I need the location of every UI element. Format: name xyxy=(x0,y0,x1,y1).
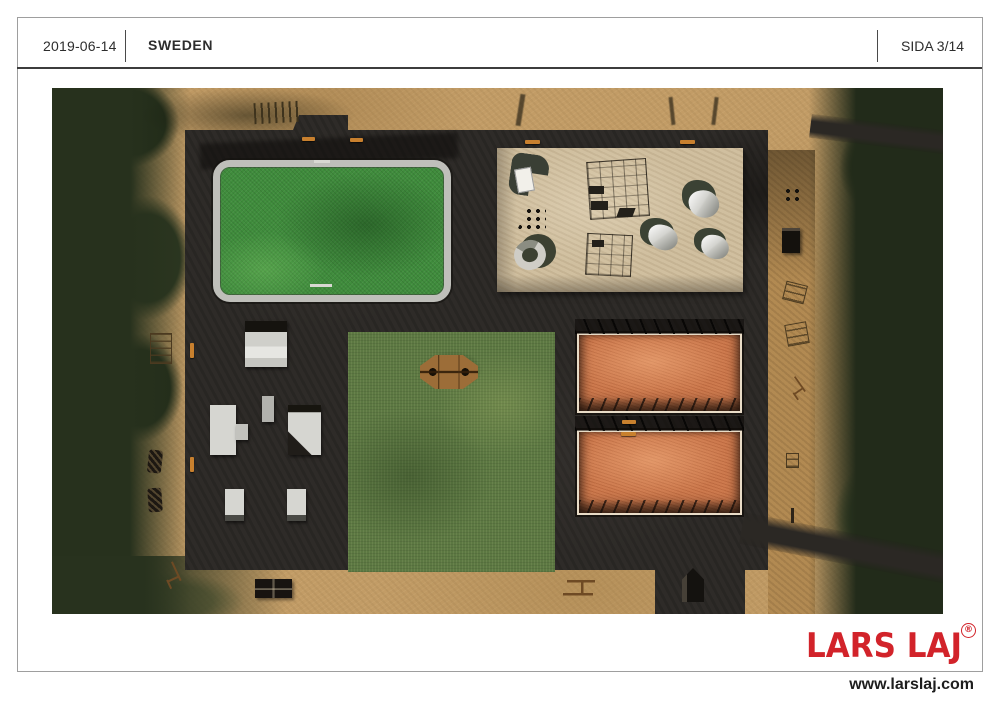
spring-rider-1 xyxy=(147,449,163,473)
skate-block-2 xyxy=(287,489,306,521)
bench-left-1 xyxy=(190,343,194,358)
climb-platform-1 xyxy=(589,186,604,194)
brand-website: www.larslaj.com xyxy=(849,676,974,694)
spring-rider-2 xyxy=(147,488,163,513)
skate-block-1 xyxy=(225,489,244,521)
climb-platform-4 xyxy=(592,240,604,247)
orange-court-lower xyxy=(577,430,742,515)
skate-ramp-right xyxy=(288,405,321,455)
court-bench-1 xyxy=(622,420,636,424)
document-page: 2019-06-14 SWEDEN SIDA 3/14 xyxy=(0,0,1000,707)
pitch-goal-bottom xyxy=(310,284,332,287)
tree-shadow-1 xyxy=(516,94,526,126)
wooden-pergola xyxy=(420,355,478,389)
picnic-bench-set xyxy=(255,579,292,598)
mini-pitch-arena xyxy=(213,160,451,302)
header-page-indicator: SIDA 3/14 xyxy=(901,38,964,54)
climb-frame-left xyxy=(150,333,172,364)
path-bench-box xyxy=(782,228,800,253)
bike-rack xyxy=(253,101,300,124)
path-grid xyxy=(784,321,809,346)
pitch-goal-top xyxy=(314,160,330,163)
parallel-bars xyxy=(563,580,595,597)
skate-funbox xyxy=(245,321,287,367)
climb-platform-3 xyxy=(616,208,635,217)
path-small-frame xyxy=(786,453,799,468)
stepping-dots-path xyxy=(784,187,800,205)
header-separator-right xyxy=(877,30,878,62)
bench-top-1 xyxy=(302,137,315,141)
registered-trademark-icon: ® xyxy=(961,623,976,638)
tree-shadow-2 xyxy=(669,97,676,125)
bench-top-3 xyxy=(525,140,540,144)
orange-court-upper xyxy=(577,333,742,413)
tree-shadow-3 xyxy=(711,97,718,125)
brand-logo: LARS LAJ xyxy=(806,627,962,666)
header-country-title: SWEDEN xyxy=(148,37,213,53)
skate-box-small xyxy=(262,396,274,422)
bench-top-4 xyxy=(680,140,695,144)
site-plan-image xyxy=(52,88,943,614)
path-post xyxy=(791,508,794,523)
court-bench-2 xyxy=(621,432,636,436)
skate-ramp-left xyxy=(210,405,236,455)
header-separator-left xyxy=(125,30,126,62)
tree-line-left xyxy=(52,88,202,614)
header-date: 2019-06-14 xyxy=(43,38,117,54)
bench-left-2 xyxy=(190,457,194,472)
climb-platform-2 xyxy=(591,201,608,210)
skate-ramp-wing xyxy=(236,424,248,440)
header-rule xyxy=(17,67,982,69)
bench-top-2 xyxy=(350,138,363,142)
